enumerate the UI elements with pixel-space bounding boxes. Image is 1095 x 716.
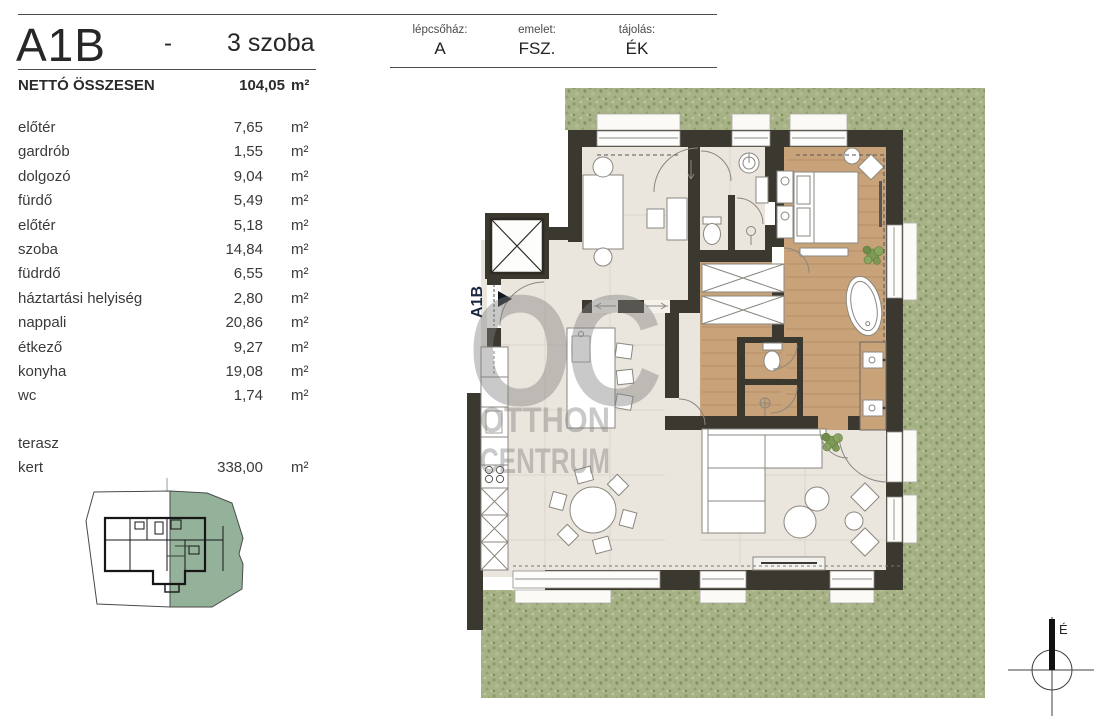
table-row: konyha19,08m² xyxy=(18,360,338,384)
room-label: szoba xyxy=(18,241,58,258)
room-area-unit: m² xyxy=(291,241,309,258)
room-label: nappali xyxy=(18,314,66,331)
table-row: előtér5,18m² xyxy=(18,214,338,238)
net-total-row: NETTÓ ÖSSZESEN 104,05 m² xyxy=(18,77,318,97)
title-underline xyxy=(18,69,316,70)
floor-value: FSZ. xyxy=(487,39,587,59)
table-row: háztartási helyiség2,80m² xyxy=(18,287,338,311)
table-row: gardrób1,55m² xyxy=(18,140,338,164)
table-row: wc1,74m² xyxy=(18,384,338,408)
room-area-value: 9,04 xyxy=(170,168,263,185)
orientation-label: tájolás: xyxy=(587,24,687,36)
table-row: étkező9,27m² xyxy=(18,336,338,360)
staircase-value: A xyxy=(390,39,490,59)
nightstand xyxy=(777,206,793,238)
side-table xyxy=(844,148,860,164)
room-area-unit: m² xyxy=(291,459,309,476)
wc-toilet xyxy=(764,351,780,371)
room-table: előtér7,65m²gardrób1,55m²dolgozó9,04m²fü… xyxy=(18,116,338,480)
room-area-unit: m² xyxy=(291,387,309,404)
net-total-unit: m² xyxy=(291,77,309,94)
room-area-unit: m² xyxy=(291,339,309,356)
room-area-unit: m² xyxy=(291,314,309,331)
table-row: szoba14,84m² xyxy=(18,238,338,262)
room-area-unit: m² xyxy=(291,168,309,185)
table-row: előtér7,65m² xyxy=(18,116,338,140)
room-count-label: 3 szoba xyxy=(227,29,315,58)
room-area-value: 1,55 xyxy=(170,143,263,160)
pouf xyxy=(784,506,816,538)
room-area-unit: m² xyxy=(291,143,309,160)
toilet-tank xyxy=(703,217,721,224)
room-area-value: 19,08 xyxy=(170,363,263,380)
title-separator: - xyxy=(164,30,172,58)
room-label: fürdő xyxy=(18,192,52,209)
net-total-label: NETTÓ ÖSSZESEN xyxy=(18,77,155,94)
floor-plan: A1B OC OTTHON CENTRUM É xyxy=(460,85,1095,716)
table-row: füdrdő6,55m² xyxy=(18,262,338,286)
watermark-line1: OTTHON xyxy=(480,401,610,440)
room-label: háztartási helyiség xyxy=(18,290,142,307)
coffee-table xyxy=(845,512,863,530)
daybed xyxy=(583,175,623,249)
room-area-value: 14,84 xyxy=(170,241,263,258)
table-row: nappali20,86m² xyxy=(18,311,338,335)
field-orientation: tájolás: ÉK xyxy=(587,24,687,59)
staircase-label: lépcsőház: xyxy=(390,24,490,36)
table-row: dolgozó9,04m² xyxy=(18,165,338,189)
nightstand xyxy=(777,171,793,203)
room-label: füdrdő xyxy=(18,265,61,282)
room-area-unit: m² xyxy=(291,363,309,380)
bed-bench xyxy=(800,248,848,256)
pillow xyxy=(797,208,810,236)
top-rule xyxy=(18,14,717,15)
room-area-unit: m² xyxy=(291,290,309,307)
compass-north-label: É xyxy=(1059,622,1068,637)
room-area-value: 7,65 xyxy=(170,119,263,136)
room-area-value: 9,27 xyxy=(170,339,263,356)
desk-chair xyxy=(647,209,664,228)
room-area-value: 5,18 xyxy=(170,217,263,234)
watermark-line2: CENTRUM xyxy=(480,442,610,481)
desk xyxy=(667,198,687,240)
field-floor: emelet: FSZ. xyxy=(487,24,587,59)
room-area-unit: m² xyxy=(291,192,309,209)
table-row: fürdő5,49m² xyxy=(18,189,338,213)
room-label: wc xyxy=(18,387,36,404)
pouf xyxy=(805,487,829,511)
room-label: kert xyxy=(18,459,43,476)
room-area-value: 20,86 xyxy=(170,314,263,331)
floorplan-sheet: A1B - 3 szoba lépcsőház: A emelet: FSZ. … xyxy=(0,0,1095,716)
room-label: gardrób xyxy=(18,143,70,160)
room-area-value: 2,80 xyxy=(170,290,263,307)
room-label: terasz xyxy=(18,435,59,452)
field-staircase: lépcsőház: A xyxy=(390,24,490,59)
site-map-highlight xyxy=(170,491,243,607)
room-area-value: 1,74 xyxy=(170,387,263,404)
site-map-building-block xyxy=(86,491,170,607)
table-row: terasz xyxy=(18,432,338,456)
room-area-value: 6,55 xyxy=(170,265,263,282)
room-area-unit: m² xyxy=(291,119,309,136)
floor-label: emelet: xyxy=(487,24,587,36)
pillow xyxy=(797,176,810,204)
room-area-unit: m² xyxy=(291,265,309,282)
page-title: A1B xyxy=(16,18,106,72)
room-label: előtér xyxy=(18,119,56,136)
bath-cabinet xyxy=(756,177,768,203)
wc-tank xyxy=(763,343,782,350)
header-underline xyxy=(390,67,717,68)
compass-icon: É xyxy=(1008,617,1094,716)
site-map xyxy=(85,476,270,621)
orientation-value: ÉK xyxy=(587,39,687,59)
toilet xyxy=(704,224,721,245)
net-total-value: 104,05 xyxy=(168,77,285,94)
vanity xyxy=(860,342,886,430)
room-area-unit: m² xyxy=(291,217,309,234)
room-area-value: 338,00 xyxy=(170,459,263,476)
room-label: konyha xyxy=(18,363,66,380)
room-label: étkező xyxy=(18,339,62,356)
room-label: előtér xyxy=(18,217,56,234)
tv-panel xyxy=(879,181,882,227)
room-label: dolgozó xyxy=(18,168,71,185)
room-area-value: 5,49 xyxy=(170,192,263,209)
